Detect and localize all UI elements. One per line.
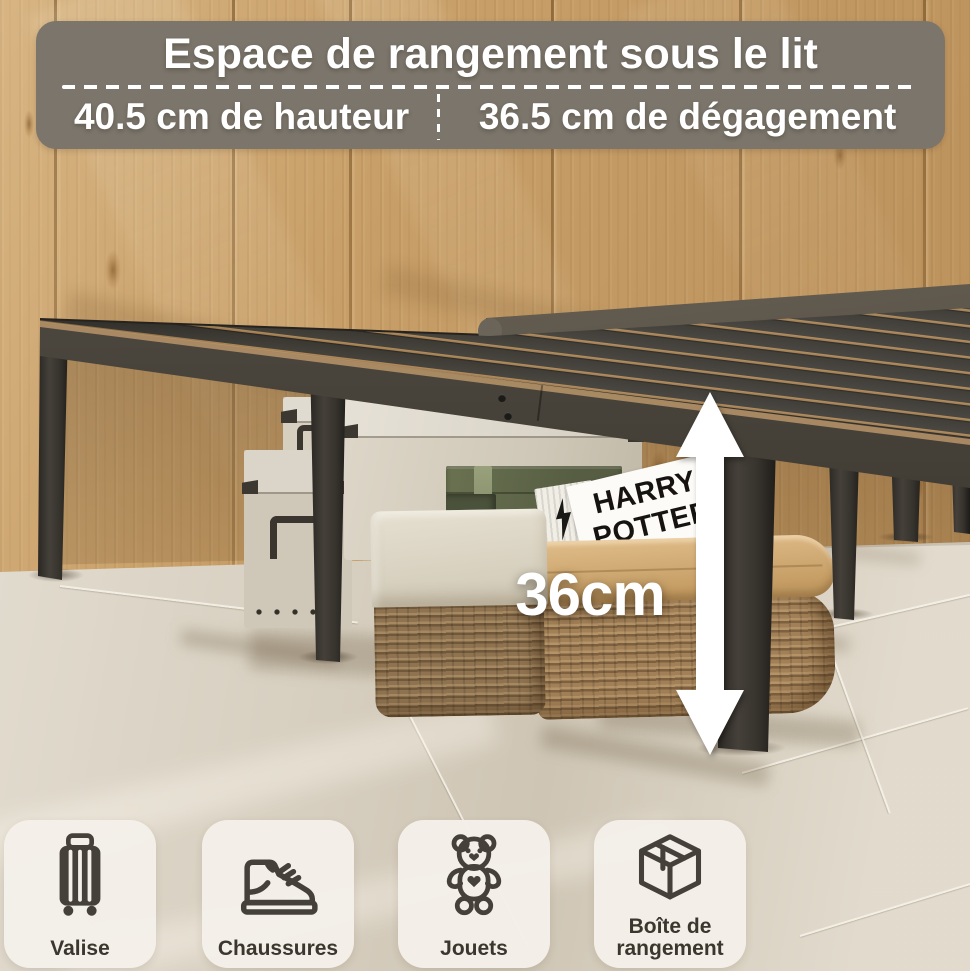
- shoe-icon: [230, 846, 326, 918]
- wood-knot: [105, 250, 121, 290]
- teddy-bear-icon: [438, 830, 510, 922]
- tile-label: Valise: [8, 938, 152, 960]
- tile-boite-de-rangement: Boîte de rangement: [594, 820, 746, 968]
- tile-label: Jouets: [402, 938, 546, 960]
- product-image: HARRY POTTER 36cm Espace de rangement so…: [0, 0, 970, 971]
- tile-chaussures: Chaussures: [202, 820, 354, 968]
- storage-box-icon: [632, 830, 708, 910]
- banner-title: Espace de rangement sous le lit: [36, 30, 945, 79]
- clearance-spec: 36.5 cm de dégagement: [440, 96, 935, 138]
- tile-label: Chaussures: [206, 938, 350, 960]
- under-bed-height-label: 36cm: [500, 560, 680, 629]
- banner-specs-row: 40.5 cm de hauteur 36.5 cm de dégagement: [36, 91, 945, 143]
- wood-knot: [24, 110, 34, 138]
- rail-rivet: [498, 394, 506, 402]
- height-spec: 40.5 cm de hauteur: [46, 96, 437, 138]
- tile-label: Boîte de rangement: [598, 916, 742, 961]
- tile-jouets: Jouets: [398, 820, 550, 968]
- rail-rivet: [504, 412, 512, 420]
- floor-tile-seam: [800, 882, 970, 937]
- info-banner: Espace de rangement sous le lit 40.5 cm …: [36, 21, 945, 149]
- banner-dashed-divider: [62, 85, 919, 89]
- tile-valise: Valise: [4, 820, 156, 968]
- suitcase-icon: [45, 830, 115, 920]
